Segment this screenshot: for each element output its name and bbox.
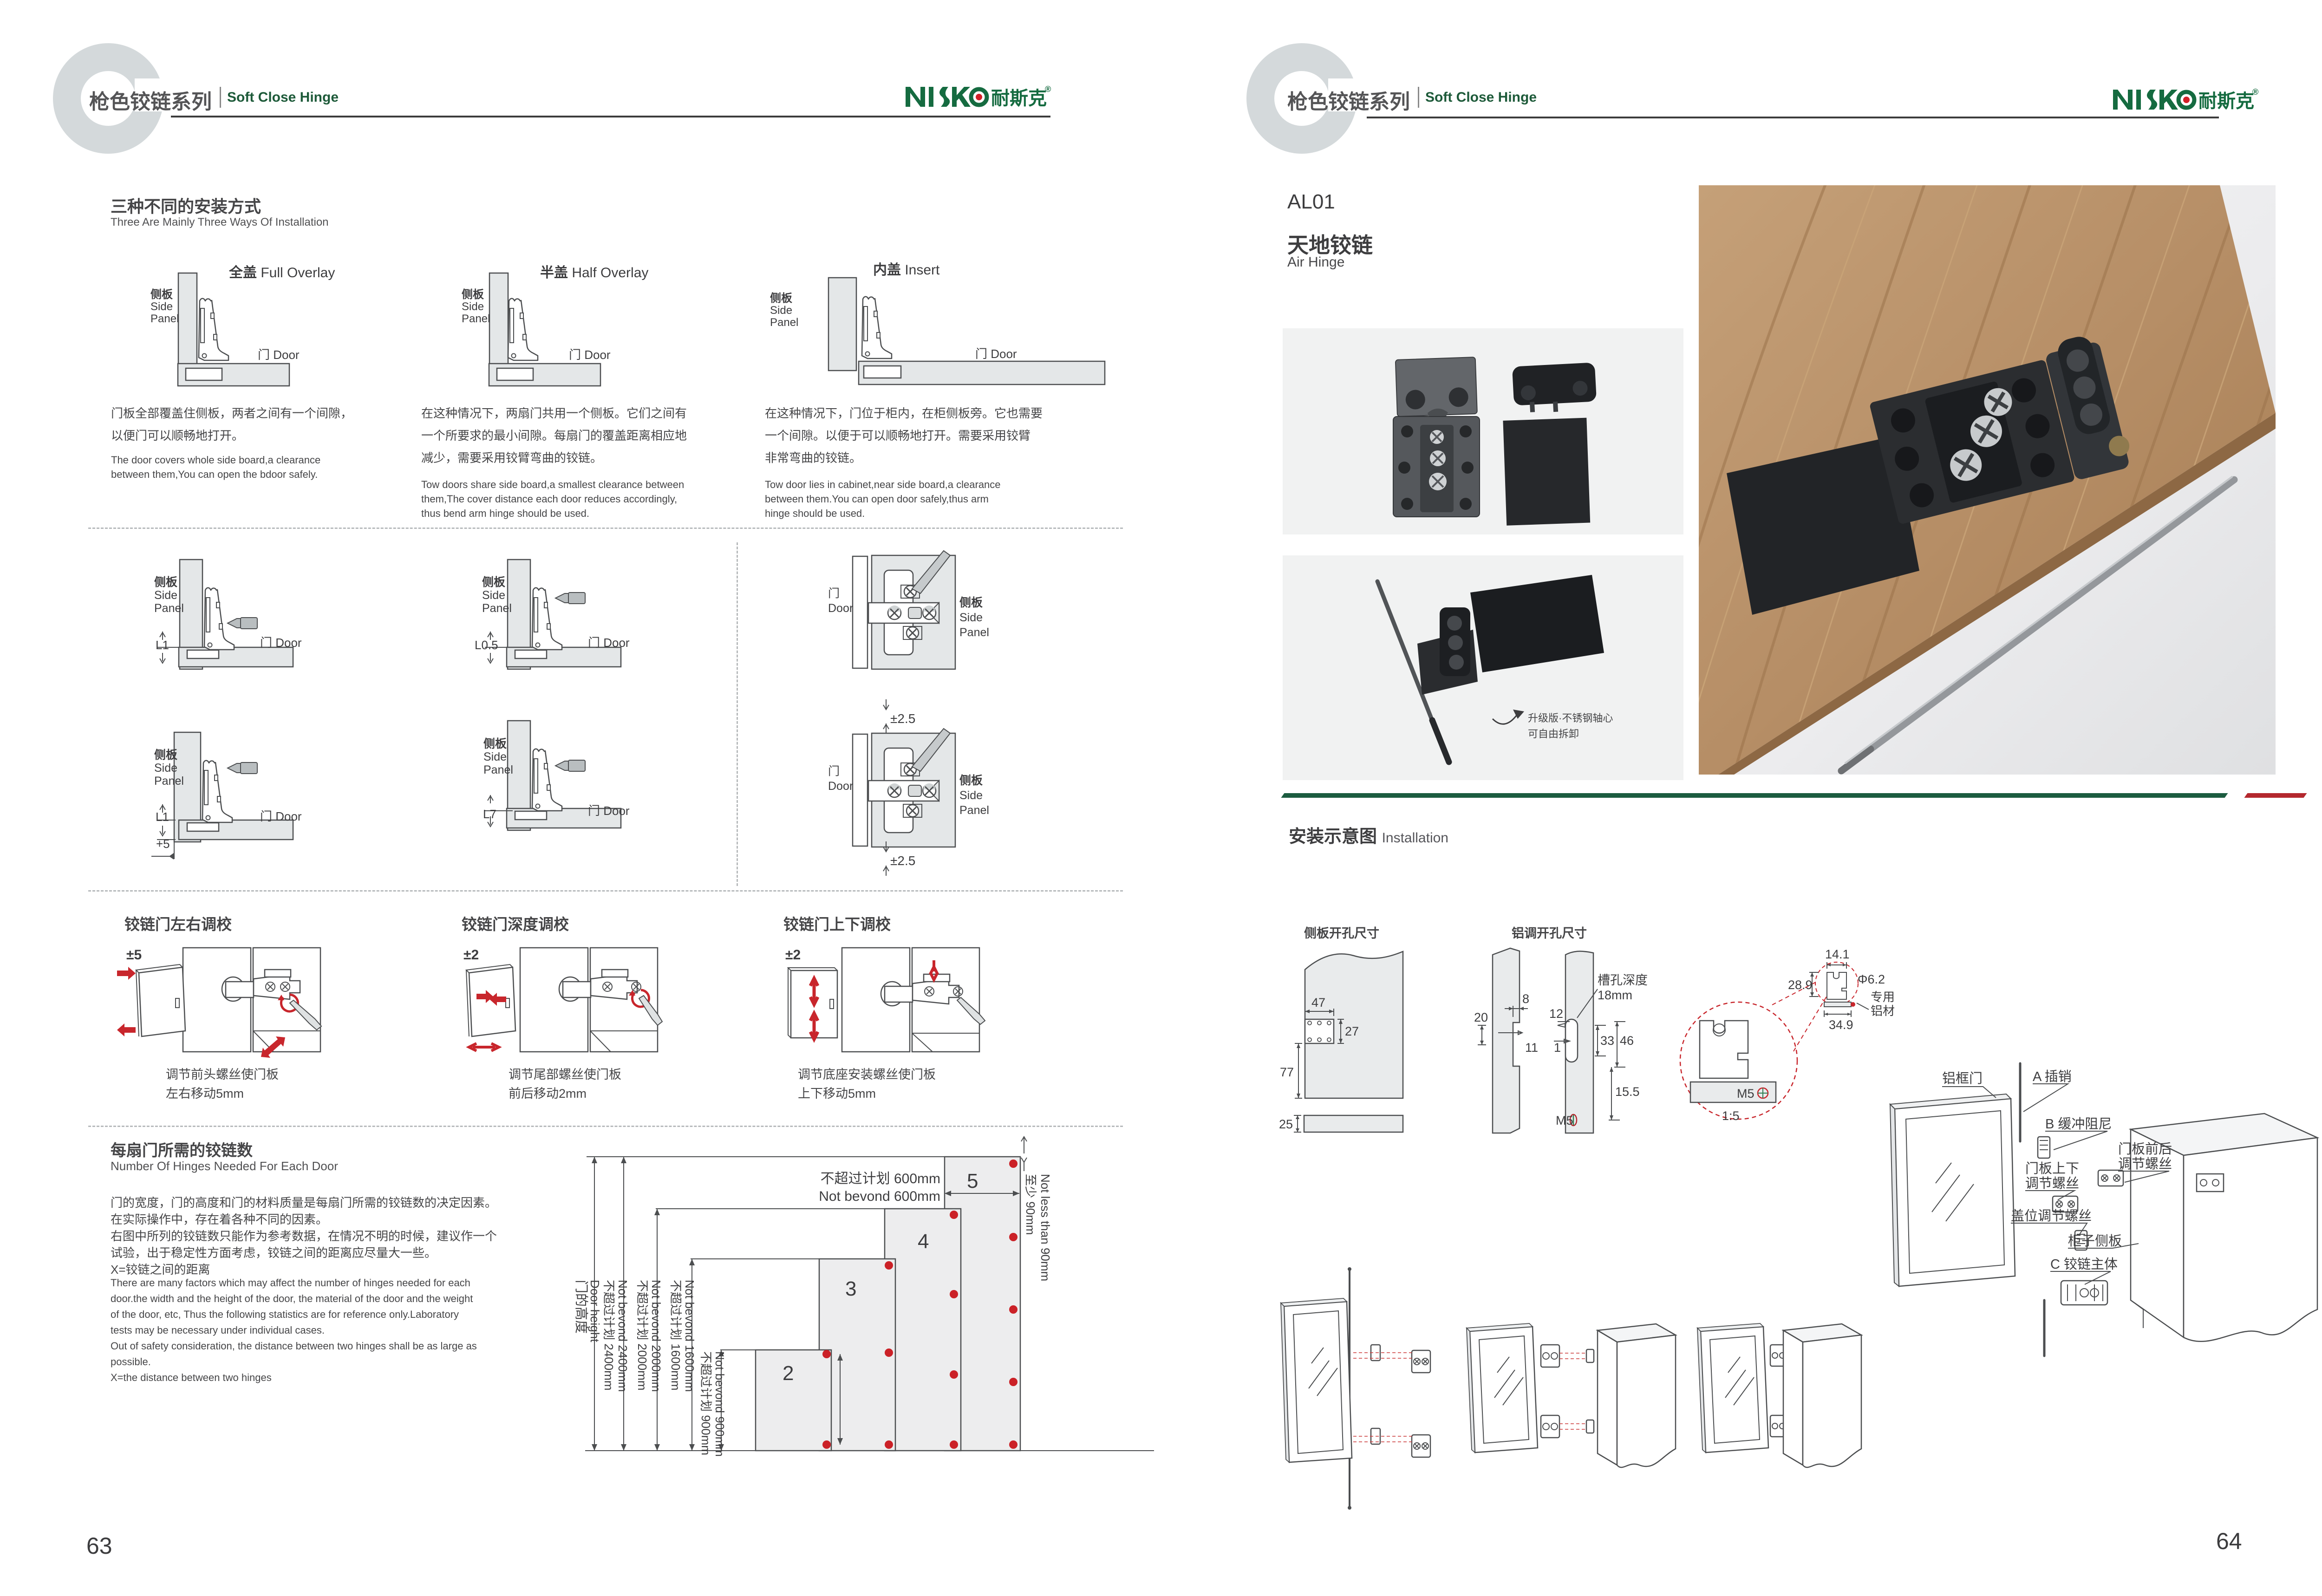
svg-text:门板上下: 门板上下 [2025, 1161, 2079, 1176]
svg-text:C 铰链主体: C 铰链主体 [2050, 1257, 2118, 1272]
svg-text:77: 77 [1280, 1065, 1294, 1079]
svg-text:Not bevond 1600mm: Not bevond 1600mm [683, 1280, 697, 1392]
svg-text:47: 47 [1311, 996, 1325, 1010]
svg-text:11: 11 [1525, 1041, 1538, 1055]
svg-text:15.5: 15.5 [1615, 1085, 1640, 1099]
svg-text:33: 33 [1600, 1034, 1614, 1048]
svg-text:耐斯克: 耐斯克 [991, 88, 1047, 109]
svg-text:®: ® [1045, 85, 1051, 94]
svg-text:不超过计划 900mm: 不超过计划 900mm [699, 1351, 713, 1455]
svg-text:调节螺丝: 调节螺丝 [2118, 1156, 2172, 1172]
svg-text:不超过计划 2400mm: 不超过计划 2400mm [602, 1280, 616, 1390]
svg-text:不超过计划 1600mm: 不超过计划 1600mm [669, 1280, 683, 1390]
svg-text:®: ® [2252, 87, 2258, 97]
svg-text:5: 5 [967, 1170, 978, 1192]
svg-text:1:5: 1:5 [1722, 1109, 1740, 1123]
svg-text:B 缓冲阻尼: B 缓冲阻尼 [2045, 1116, 2112, 1132]
svg-text:门板前后: 门板前后 [2118, 1141, 2172, 1157]
svg-text:20: 20 [1474, 1010, 1488, 1024]
svg-text:A 插销: A 插销 [2033, 1069, 2072, 1084]
svg-text:至少 90mm: 至少 90mm [1024, 1174, 1037, 1235]
svg-text:46: 46 [1620, 1034, 1634, 1048]
svg-text:28.9: 28.9 [1788, 978, 1813, 992]
svg-text:M5: M5 [1556, 1114, 1573, 1127]
svg-text:2: 2 [783, 1362, 794, 1385]
svg-text:25: 25 [1279, 1117, 1293, 1131]
svg-text:调节螺丝: 调节螺丝 [2025, 1176, 2079, 1191]
svg-text:铝材: 铝材 [1871, 1004, 1895, 1018]
svg-text:3: 3 [845, 1277, 856, 1300]
svg-text:8: 8 [1522, 992, 1529, 1006]
svg-text:不超过计划 600mm: 不超过计划 600mm [821, 1171, 940, 1186]
svg-text:12: 12 [1549, 1007, 1563, 1021]
svg-text:M5: M5 [1737, 1087, 1755, 1101]
svg-text:Not bevond 900mm: Not bevond 900mm [713, 1351, 727, 1457]
svg-text:盖位调节螺丝: 盖位调节螺丝 [2011, 1208, 2092, 1224]
svg-text:柜子侧板: 柜子侧板 [2068, 1233, 2122, 1249]
svg-text:4: 4 [918, 1230, 929, 1253]
svg-text:门的高度: 门的高度 [574, 1280, 589, 1334]
svg-text:铝框门: 铝框门 [1942, 1071, 1983, 1086]
svg-text:34.9: 34.9 [1829, 1018, 1853, 1032]
svg-text:Φ6.2: Φ6.2 [1858, 972, 1885, 986]
svg-text:Not bevond 2000mm: Not bevond 2000mm [649, 1280, 663, 1392]
svg-text:27: 27 [1345, 1024, 1359, 1038]
svg-text:专用: 专用 [1871, 990, 1895, 1004]
svg-text:槽孔深度: 槽孔深度 [1598, 973, 1648, 987]
svg-text:不超过计划 2000mm: 不超过计划 2000mm [635, 1280, 649, 1390]
svg-text:18mm: 18mm [1598, 988, 1632, 1002]
svg-text:Door height: Door height [588, 1280, 602, 1342]
svg-text:14.1: 14.1 [1825, 947, 1850, 961]
svg-text:Not bevond 2400mm: Not bevond 2400mm [616, 1280, 630, 1392]
svg-text:Not less than 90mm: Not less than 90mm [1038, 1174, 1052, 1281]
svg-text:耐斯克: 耐斯克 [2198, 91, 2254, 111]
svg-text:1: 1 [1554, 1041, 1561, 1055]
svg-text:Not bevond 600mm: Not bevond 600mm [819, 1189, 940, 1204]
